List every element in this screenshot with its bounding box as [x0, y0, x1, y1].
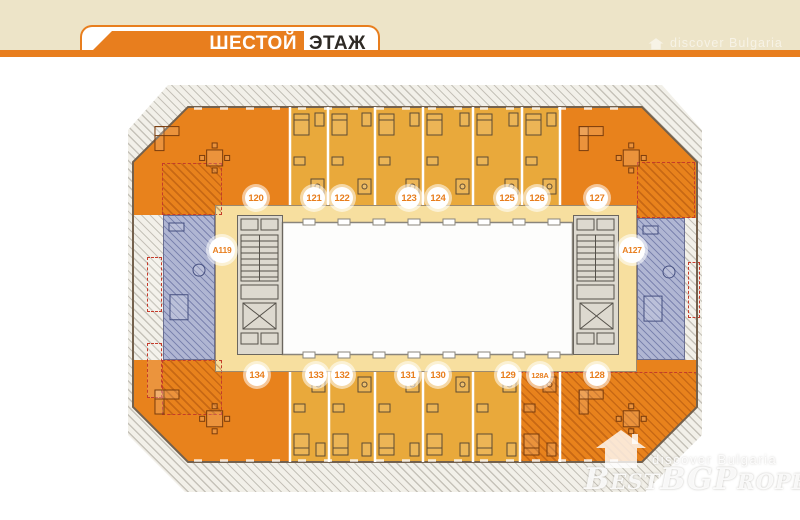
unit-badge-A119[interactable]: A119 [209, 237, 235, 263]
unit-badge-130[interactable]: 130 [427, 364, 449, 386]
unit-badge-133[interactable]: 133 [305, 364, 327, 386]
floor-plan: 120121122123124125126127A119A12713413313… [128, 85, 702, 492]
unit-badge-127[interactable]: 127 [586, 187, 608, 209]
floor-title-primary: ШЕСТОЙ [209, 33, 297, 54]
page: { "header": { "floor_title_primary": "ШЕ… [0, 0, 800, 520]
unit-badges-layer: 120121122123124125126127A119A12713413313… [128, 85, 702, 492]
unit-badge-128[interactable]: 128 [586, 364, 608, 386]
unit-badge-126[interactable]: 126 [526, 187, 548, 209]
unit-badge-120[interactable]: 120 [245, 187, 267, 209]
unit-badge-132[interactable]: 132 [331, 364, 353, 386]
floor-title-secondary: ЭТАЖ [309, 31, 366, 57]
unit-badge-125[interactable]: 125 [496, 187, 518, 209]
unit-badge-129[interactable]: 129 [497, 364, 519, 386]
unit-badge-131[interactable]: 131 [397, 364, 419, 386]
floor-title-shape: ШЕСТОЙ [86, 31, 304, 57]
unit-badge-A127[interactable]: A127 [619, 237, 645, 263]
unit-badge-124[interactable]: 124 [427, 187, 449, 209]
unit-badge-121[interactable]: 121 [303, 187, 325, 209]
unit-badge-134[interactable]: 134 [246, 364, 268, 386]
unit-badge-122[interactable]: 122 [331, 187, 353, 209]
unit-badge-128A[interactable]: 128A [529, 364, 551, 386]
unit-badge-123[interactable]: 123 [398, 187, 420, 209]
